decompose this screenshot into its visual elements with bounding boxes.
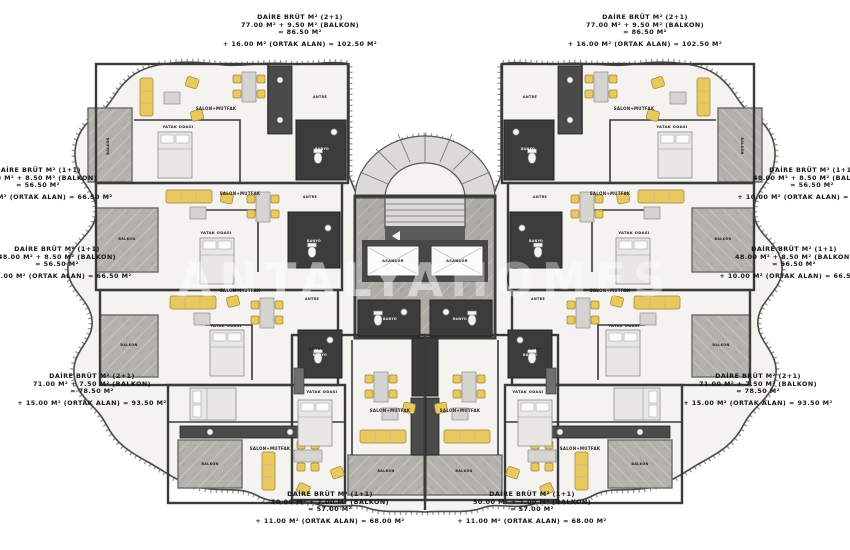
area-note-bottom-right: DAİRE BRÜT M² (2+1)71.00 M² + 7.50 M² (B… — [683, 373, 832, 407]
room-label-antre: ANTRE — [313, 95, 328, 99]
area-note-bottom-center-left: DAİRE BRÜT M² (1+1)50.00 M² + 7.00 M² (B… — [255, 491, 404, 525]
room-label-antre: ANTRE — [531, 297, 546, 301]
room-label-balkon: BALKON — [120, 343, 137, 347]
room-label-salon-mutfak: SALON+MUTFAK — [440, 408, 481, 413]
room-label-yatak-odasi: YATAK ODASI — [161, 124, 194, 129]
room-label-salon-mutfak: SALON+MUTFAK — [250, 446, 291, 451]
room-label-yatak-odasi: YATAK ODASI — [209, 323, 242, 328]
room-label-banyo: BANYO — [315, 147, 329, 151]
room-label-balkon: BALKON — [631, 462, 648, 466]
room-label-yatak-odasi: YATAK ODASI — [511, 389, 544, 394]
floor-plan-page: ANTALYAHOMES SALON+MUTFAKYATAK ODASIBALK… — [0, 0, 850, 550]
room-label-antre: ANTRE — [533, 195, 548, 199]
room-label-yatak-odasi: YATAK ODASI — [655, 124, 688, 129]
room-label-balkon: BALKON — [118, 237, 135, 241]
room-label-balkon: BALKON — [740, 137, 744, 154]
room-label-yatak-odasi: YATAK ODASI — [607, 323, 640, 328]
room-label-yatak-odasi: YATAK ODASI — [199, 230, 232, 235]
room-label-balkon: BALKON — [106, 137, 110, 154]
room-label-salon-mutfak: SALON+MUTFAK — [590, 288, 631, 293]
room-label-salon-mutfak: SALON+MUTFAK — [370, 408, 411, 413]
room-label-balkon: BALKON — [712, 343, 729, 347]
room-label-banyo: BANYO — [307, 239, 321, 243]
room-label-yatak-odasi: YATAK ODASI — [617, 230, 650, 235]
room-label-asans-r: ASANSÖR — [382, 258, 404, 263]
area-note-top-right: DAİRE BRÜT M² (2+1)77.00 M² + 9.50 M² (B… — [568, 14, 722, 48]
room-label-banyo: BANYO — [383, 317, 397, 321]
area-note-bottom-left: DAİRE BRÜT M² (2+1)71.00 M² + 7.50 M² (B… — [17, 373, 166, 407]
area-note-left-upper: DAİRE BRÜT M² (1+1)48.00 M² + 8.50 M² (B… — [0, 167, 113, 201]
area-note-bottom-center-right: DAİRE BRÜT M² (1+1)50.00 M² + 7.00 M² (B… — [457, 491, 606, 525]
room-label-banyo: BANYO — [529, 239, 543, 243]
watermark: ANTALYAHOMES — [177, 253, 673, 307]
room-label-salon-mutfak: SALON+MUTFAK — [196, 106, 237, 111]
room-label-banyo: BANYO — [313, 353, 327, 357]
room-label-balkon: BALKON — [201, 462, 218, 466]
room-label-banyo: BANYO — [523, 353, 537, 357]
room-label-yatak-odasi: YATAK ODASI — [305, 389, 338, 394]
area-note-right-upper: DAİRE BRÜT M² (1+1)48.00 M² + 8.50 M² (B… — [737, 167, 850, 201]
room-label-antre: ANTRE — [523, 95, 538, 99]
room-label-balkon: BALKON — [377, 469, 394, 473]
room-label-salon-mutfak: SALON+MUTFAK — [220, 288, 261, 293]
room-label-balkon: BALKON — [714, 237, 731, 241]
room-label-antre: ANTRE — [309, 347, 324, 351]
room-label-asans-r: ASANSÖR — [446, 258, 468, 263]
room-label-salon-mutfak: SALON+MUTFAK — [560, 446, 601, 451]
room-label-balkon: BALKON — [455, 469, 472, 473]
room-label-banyo: BANYO — [453, 317, 467, 321]
room-label-salon-mutfak: SALON+MUTFAK — [590, 191, 631, 196]
area-note-right-lower: DAİRE BRÜT M² (1+1)48.00 M² + 8.50 M² (B… — [719, 246, 850, 280]
room-label-salon-mutfak: SALON+MUTFAK — [614, 106, 655, 111]
room-label-antre: ANTRE — [305, 297, 320, 301]
room-label-antre: ANTRE — [527, 347, 542, 351]
area-note-top-left: DAİRE BRÜT M² (2+1)77.00 M² + 9.50 M² (B… — [223, 14, 377, 48]
area-note-left-lower: DAİRE BRÜT M² (1+1)48.00 M² + 8.50 M² (B… — [0, 246, 132, 280]
room-label-banyo: BANYO — [521, 147, 535, 151]
room-label-salon-mutfak: SALON+MUTFAK — [220, 191, 261, 196]
room-label-antre: ANTRE — [303, 195, 318, 199]
